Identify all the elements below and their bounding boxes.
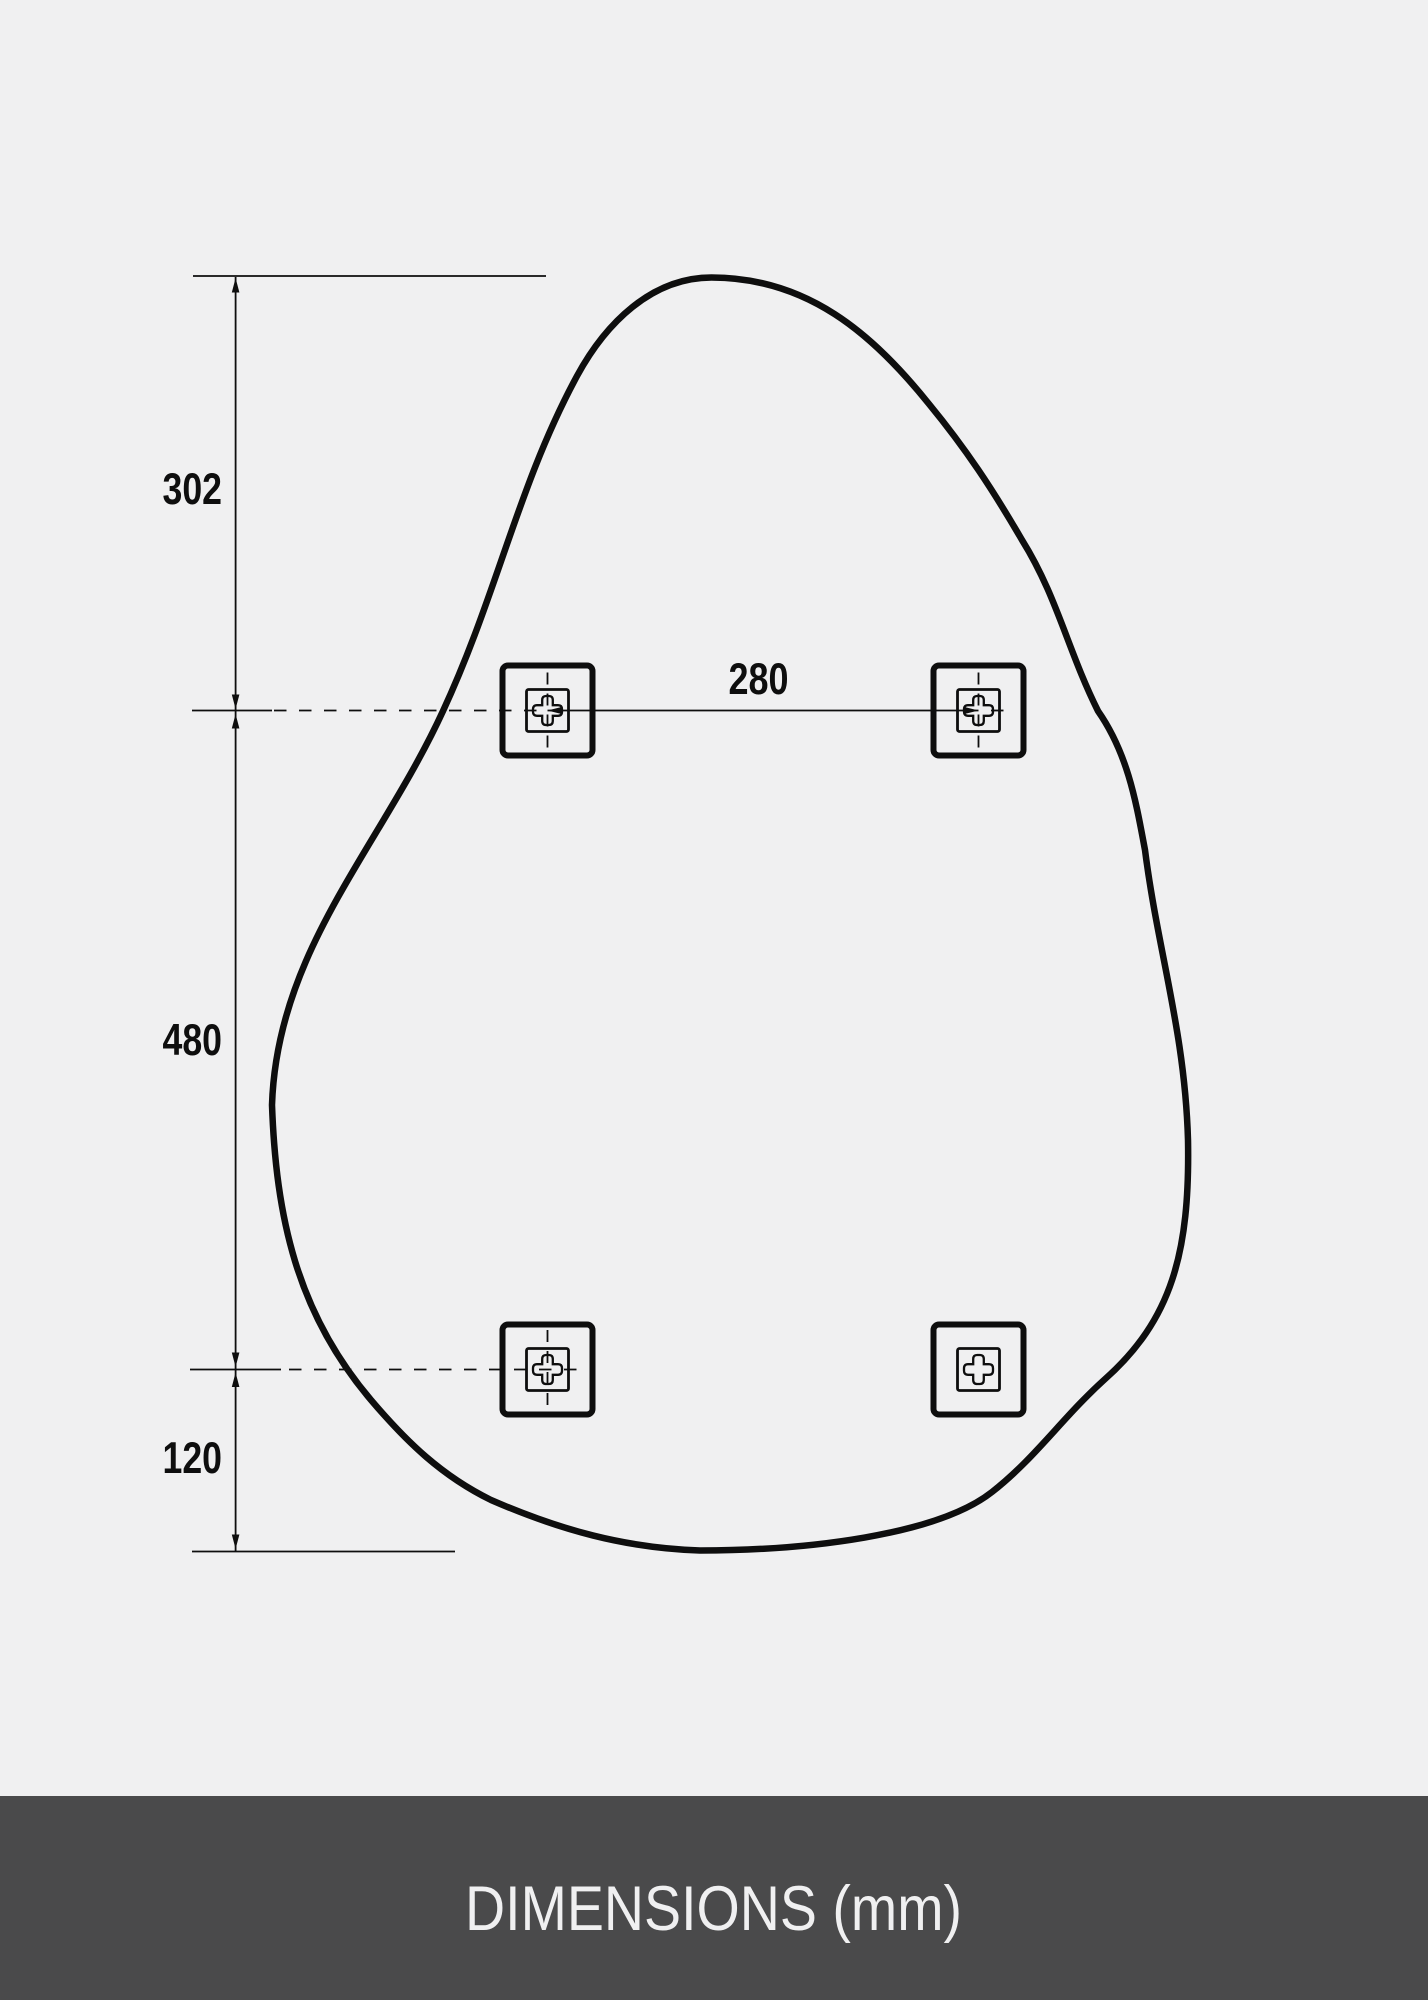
svg-text:DIMENSIONS (mm): DIMENSIONS (mm) [465,1874,962,1944]
svg-text:280: 280 [729,655,789,704]
svg-text:480: 480 [163,1016,223,1065]
svg-text:302: 302 [163,465,223,514]
svg-text:120: 120 [163,1434,223,1483]
